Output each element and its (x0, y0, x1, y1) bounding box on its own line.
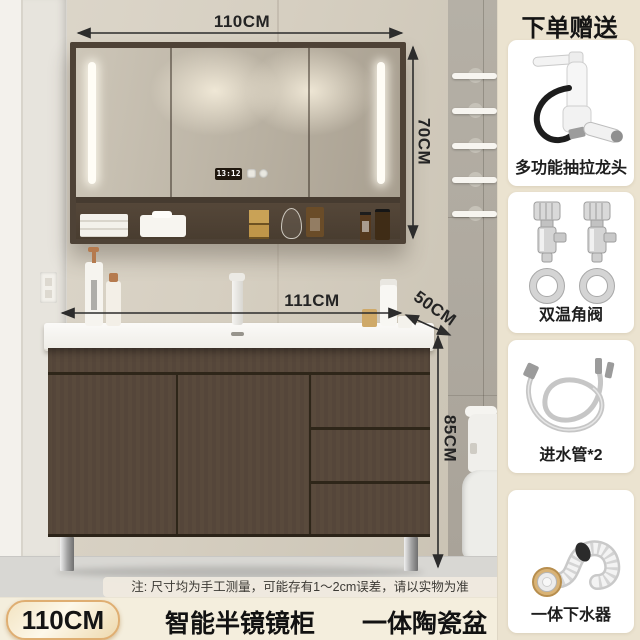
led-strip-right (377, 62, 385, 184)
bottle-label (91, 280, 97, 310)
towel-bar (452, 143, 497, 149)
folded-towels (80, 214, 128, 237)
dim-label-mirror-width: 110CM (192, 13, 292, 30)
gold-jar (249, 225, 269, 239)
dim-label-counter-width: 111CM (262, 292, 362, 309)
led-strip-left (88, 62, 96, 184)
bathroom-scene: 13:12 (0, 0, 497, 640)
faucet-spout (229, 273, 245, 281)
feature-ceramic-basin: 一体陶瓷盆 (352, 604, 497, 640)
door-seam (176, 375, 178, 535)
countertop-basin (44, 323, 434, 351)
gift-card-valves: 双温角阀 (508, 192, 634, 333)
towel-bar (452, 211, 497, 217)
small-bottle (375, 209, 390, 240)
gift-card-faucet: 多功能抽拉龙头 (508, 40, 634, 186)
inlet-hoses-icon (511, 344, 631, 448)
gold-jar (249, 210, 269, 225)
cabinet-bottom-edge (48, 534, 430, 537)
dim-label-mirror-height: 70CM (416, 117, 433, 167)
bottle-label (310, 218, 320, 231)
light-glow (245, 46, 375, 136)
tile-grout-line (448, 395, 497, 396)
product-image: 13:12 (0, 0, 640, 640)
cosmetic-tube (380, 279, 397, 326)
drawer-seam (311, 481, 430, 484)
light-touch-button (259, 169, 268, 178)
defog-touch-button (247, 169, 256, 178)
drain-kit-icon (511, 494, 631, 608)
overflow-hole (231, 332, 244, 336)
angle-valves-icon (511, 196, 631, 308)
bottle-cap (109, 273, 118, 282)
pullout-faucet-icon (511, 44, 631, 154)
gift-card-hoses: 进水管*2 (508, 340, 634, 473)
size-badge: 110CM (6, 600, 120, 640)
faucet (232, 278, 243, 325)
white-jar (398, 316, 412, 328)
tissue-pull (152, 211, 172, 218)
door-frame (0, 0, 23, 556)
switch-toggle (45, 290, 52, 298)
door-seam (309, 375, 311, 535)
vanity-cabinet (48, 348, 430, 537)
drawer-seam (311, 427, 430, 430)
lotion-bottle (106, 281, 121, 326)
mirror-door-seam (308, 48, 310, 198)
measurement-note: 注: 尺寸均为手工测量，可能存有1～2cm误差，请以实物为准 (103, 577, 497, 597)
footer-bar: 110CM 智能半镜镜柜 一体陶瓷盆 (0, 597, 497, 640)
tile-grout-line (277, 244, 279, 323)
cabinet-groove (48, 372, 430, 375)
gift-sidebar: 下单赠送 多功能抽拉龙头 (497, 0, 640, 640)
clock-display: 13:12 (215, 168, 242, 180)
light-switch (40, 272, 57, 303)
bottle-label (362, 221, 369, 232)
feature-mirror-cabinet: 智能半镜镜柜 (150, 604, 330, 640)
towel-bar (452, 177, 497, 183)
towel-bar (452, 108, 497, 114)
toilet-hinge (470, 443, 477, 454)
glass-vase (281, 208, 302, 239)
gift-card-drain: 一体下水器 (508, 490, 634, 633)
towel-bar (452, 73, 497, 79)
gold-jar (362, 309, 377, 327)
sidebar-title: 下单赠送 (498, 8, 640, 43)
gift-label: 多功能抽拉龙头 (515, 154, 627, 186)
toilet-bowl (462, 470, 497, 560)
tissue-box (140, 215, 186, 237)
chrome-leg-left (60, 537, 74, 571)
switch-toggle (45, 278, 52, 286)
chrome-leg-right (404, 537, 418, 571)
dim-label-cabinet-height: 85CM (442, 414, 459, 464)
mirror-door-seam (170, 48, 172, 198)
dispenser-spout (88, 247, 99, 252)
